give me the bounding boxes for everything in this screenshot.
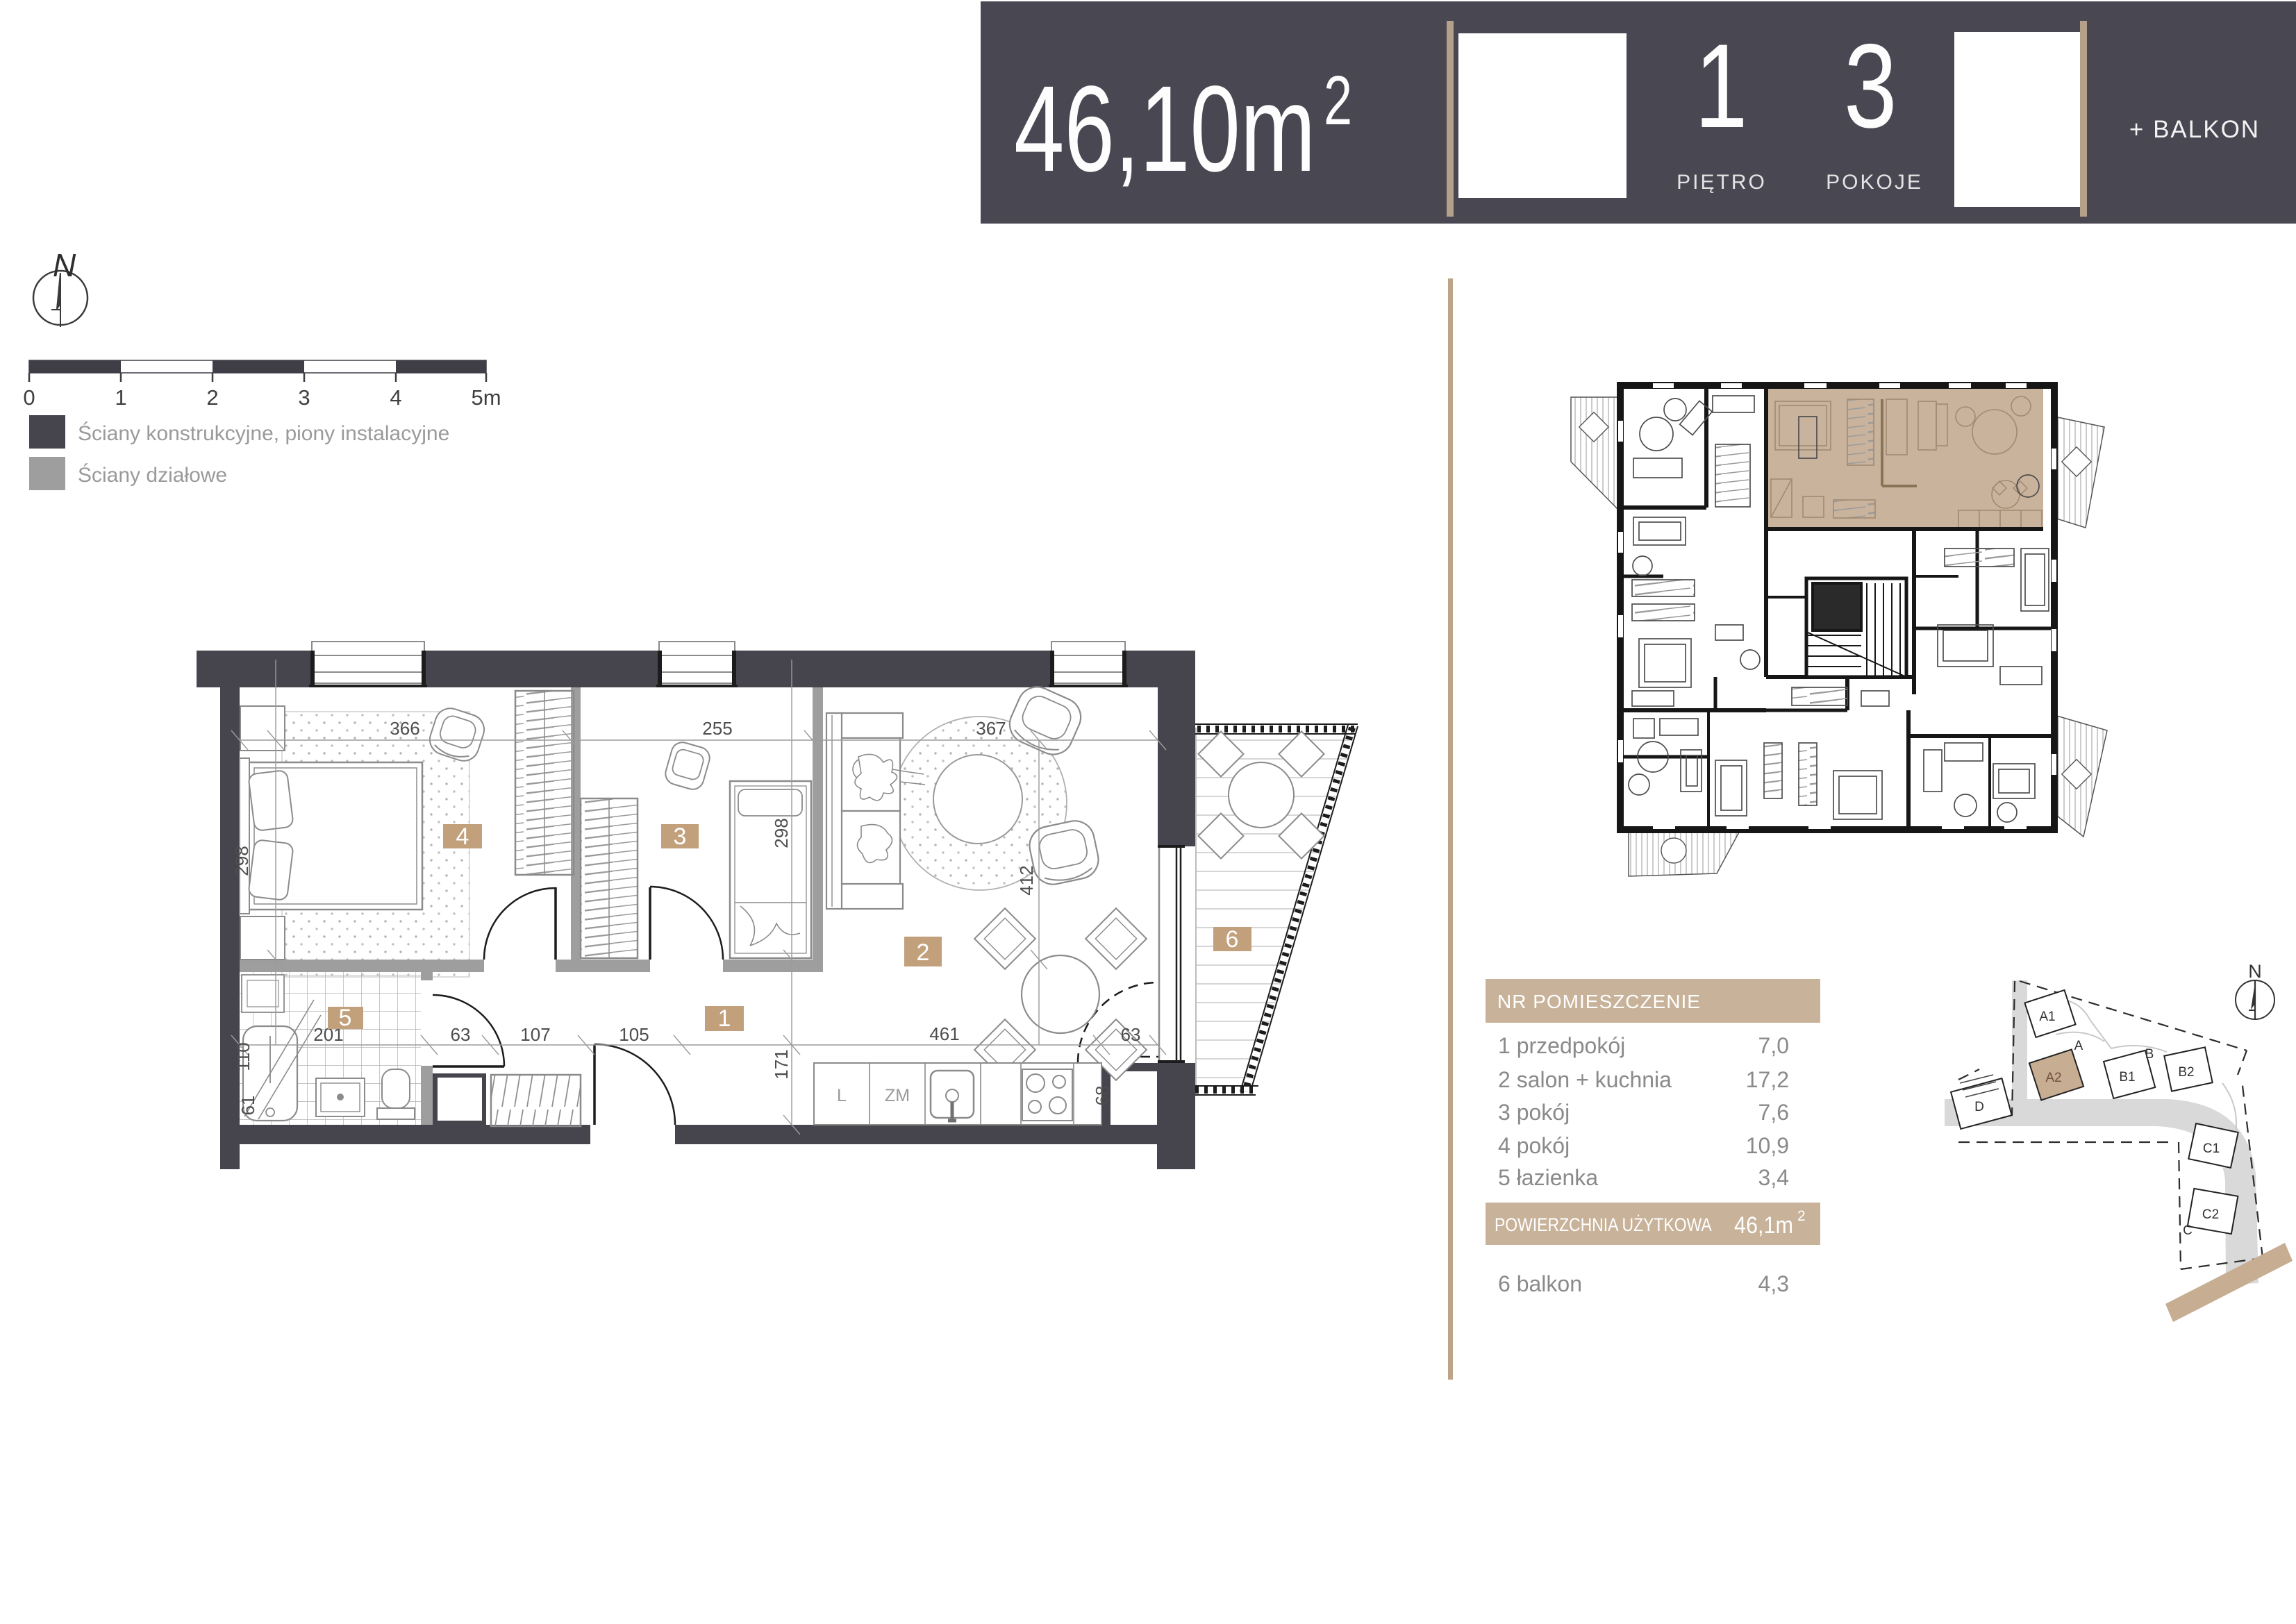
svg-text:A: A — [2074, 1039, 2083, 1053]
svg-text:3: 3 — [1844, 19, 1897, 153]
svg-text:46,1m: 46,1m — [1734, 1212, 1793, 1239]
svg-text:B: B — [2145, 1047, 2154, 1062]
svg-text:POWIERZCHNIA UŻYTKOWA: POWIERZCHNIA UŻYTKOWA — [1495, 1214, 1712, 1235]
svg-text:367: 367 — [976, 718, 1006, 739]
svg-text:2: 2 — [1797, 1208, 1806, 1224]
svg-text:6: 6 — [1226, 926, 1239, 953]
svg-text:63: 63 — [451, 1024, 471, 1045]
svg-text:C1: C1 — [2203, 1141, 2220, 1156]
svg-text:4 pokój: 4 pokój — [1498, 1133, 1570, 1158]
svg-text:1: 1 — [115, 385, 126, 410]
svg-text:A1: A1 — [2039, 1010, 2055, 1024]
svg-text:63: 63 — [1121, 1024, 1141, 1045]
svg-text:4: 4 — [456, 823, 469, 850]
svg-text:A2: A2 — [2045, 1071, 2061, 1085]
svg-text:7,0: 7,0 — [1758, 1033, 1789, 1058]
svg-text:17,2: 17,2 — [1746, 1067, 1789, 1092]
svg-text:3,4: 3,4 — [1758, 1165, 1789, 1190]
svg-text:5: 5 — [339, 1005, 352, 1031]
svg-text:C: C — [2183, 1223, 2193, 1238]
svg-text:5 łazienka: 5 łazienka — [1498, 1165, 1598, 1190]
svg-text:46,10m: 46,10m — [1014, 60, 1315, 197]
svg-text:298: 298 — [771, 818, 792, 848]
svg-text:L: L — [837, 1086, 847, 1105]
svg-text:2: 2 — [917, 939, 930, 966]
svg-text:POKOJE: POKOJE — [1826, 171, 1923, 194]
svg-text:D: D — [1974, 1100, 1984, 1114]
svg-text:255: 255 — [702, 718, 732, 739]
svg-text:171: 171 — [771, 1049, 792, 1079]
svg-text:PIĘTRO: PIĘTRO — [1677, 171, 1767, 194]
svg-text:NR POMIESZCZENIE: NR POMIESZCZENIE — [1497, 991, 1701, 1012]
svg-text:5m: 5m — [471, 385, 501, 410]
svg-text:+ BALKON: + BALKON — [2129, 116, 2260, 143]
svg-text:N: N — [53, 247, 76, 283]
svg-text:4,3: 4,3 — [1758, 1271, 1789, 1296]
svg-text:1 przedpokój: 1 przedpokój — [1498, 1033, 1625, 1058]
svg-text:2 salon + kuchnia: 2 salon + kuchnia — [1498, 1067, 1672, 1092]
svg-text:C2: C2 — [2202, 1207, 2219, 1222]
svg-text:3: 3 — [674, 823, 687, 850]
svg-text:298: 298 — [231, 846, 252, 876]
svg-text:412: 412 — [1016, 865, 1037, 895]
svg-text:61: 61 — [238, 1096, 258, 1116]
svg-text:B1: B1 — [2119, 1070, 2135, 1085]
svg-text:3 pokój: 3 pokój — [1498, 1100, 1570, 1125]
svg-text:107: 107 — [520, 1024, 550, 1045]
svg-text:1: 1 — [1695, 19, 1748, 153]
svg-text:Ściany konstrukcyjne, piony in: Ściany konstrukcyjne, piony instalacyjne — [78, 421, 449, 445]
svg-text:4: 4 — [390, 385, 401, 410]
svg-text:ZM: ZM — [885, 1086, 910, 1105]
svg-text:N: N — [2248, 961, 2262, 982]
svg-text:110: 110 — [233, 1042, 253, 1071]
svg-text:B2: B2 — [2178, 1065, 2194, 1080]
svg-text:Ściany działowe: Ściany działowe — [78, 463, 227, 487]
svg-text:6 balkon: 6 balkon — [1498, 1271, 1582, 1296]
svg-text:7,6: 7,6 — [1758, 1100, 1789, 1125]
svg-text:0: 0 — [23, 385, 35, 410]
svg-text:105: 105 — [619, 1024, 649, 1045]
svg-text:2: 2 — [1324, 61, 1352, 140]
svg-text:3: 3 — [298, 385, 310, 410]
svg-text:461: 461 — [929, 1023, 959, 1044]
svg-text:366: 366 — [390, 718, 419, 739]
svg-text:2: 2 — [206, 385, 218, 410]
svg-text:10,9: 10,9 — [1746, 1133, 1789, 1158]
svg-text:68: 68 — [1092, 1086, 1113, 1106]
svg-text:1: 1 — [718, 1005, 731, 1032]
